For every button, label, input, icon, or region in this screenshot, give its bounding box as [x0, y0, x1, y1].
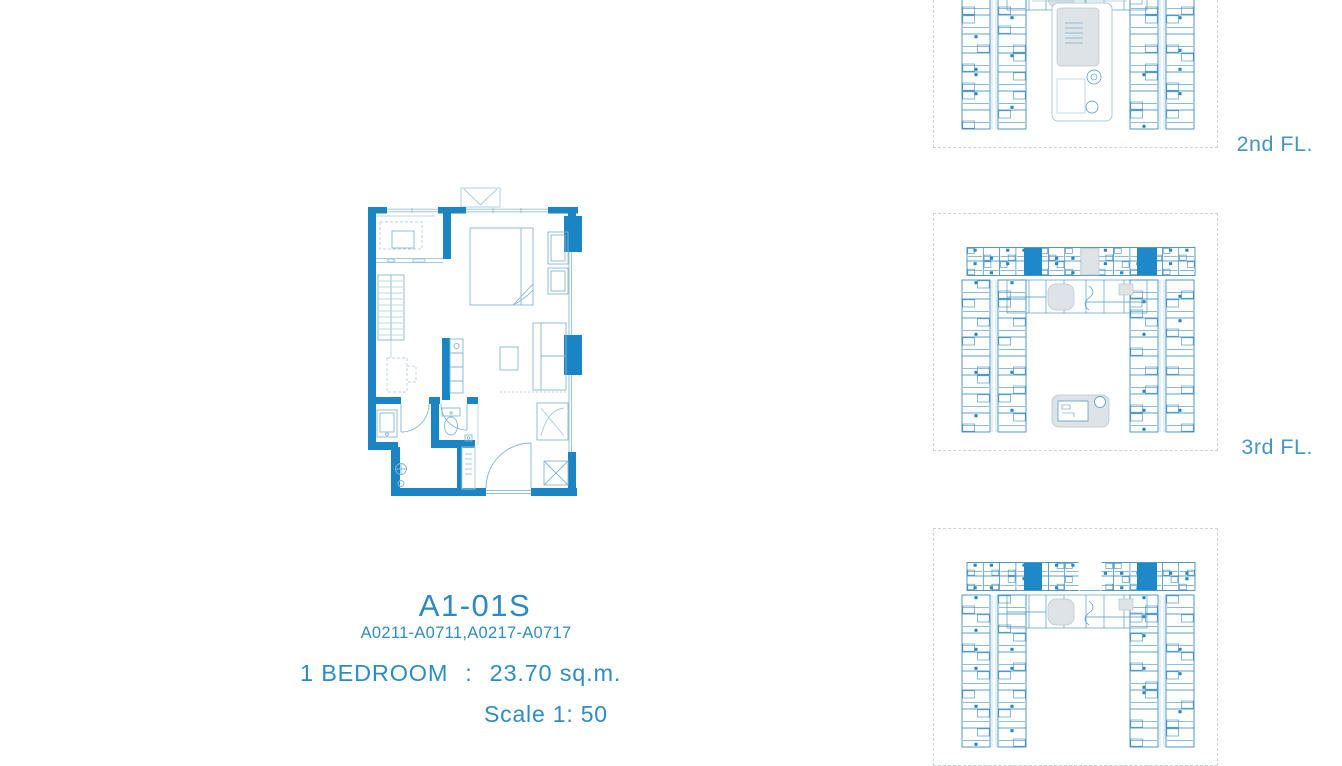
window-lines: [387, 208, 572, 494]
brochure-page: A1-01S A0211-A0711,A0217-A0717 1 BEDROOM…: [0, 0, 1342, 754]
building-plan-3rd-floor: 3rd FL.: [933, 213, 1218, 451]
unit-numbers: A0211-A0711,A0217-A0717: [316, 624, 616, 643]
building-plan-3rd-floor-drawing: [934, 214, 1217, 450]
floor-drain-symbol: [544, 461, 568, 485]
area-value: 23.70 sq.m.: [490, 660, 622, 686]
floor-label-2nd: 2nd FL.: [1237, 132, 1313, 157]
entry-closet-symbol: [537, 403, 568, 440]
dining-table-symbol: [387, 358, 416, 392]
washing-machine-symbol: [462, 447, 475, 489]
unit-type-area-line: 1 BEDROOM:23.70 sq.m.: [300, 660, 640, 687]
coffee-table-symbol: [500, 347, 518, 370]
kitchen-counter-symbol: [450, 339, 463, 393]
bed-symbol: [470, 228, 533, 305]
sink-symbol: [377, 410, 397, 437]
bedroom-label: 1 BEDROOM: [300, 660, 448, 686]
separator-colon: :: [465, 660, 472, 686]
sofa-symbol: [533, 323, 566, 390]
building-plan-upper-floor-drawing: [934, 529, 1217, 765]
toilet-symbol: [442, 408, 472, 441]
building-plan-upper-floor: [933, 528, 1218, 766]
desk-symbol: [376, 216, 443, 263]
unit-floor-plan: [365, 186, 595, 498]
building-plan-2nd-floor: 2nd FL.: [933, 0, 1218, 148]
floor-label-3rd: 3rd FL.: [1241, 435, 1313, 460]
ac-balcony-symbol: [461, 188, 500, 207]
building-plan-2nd-floor-drawing: [934, 0, 1217, 147]
scale-label: Scale 1: 50: [484, 701, 608, 728]
wardrobe-symbol: [378, 275, 404, 358]
unit-code-title: A1-01S: [325, 588, 625, 624]
nightstand-shelves-symbol: [548, 232, 568, 294]
